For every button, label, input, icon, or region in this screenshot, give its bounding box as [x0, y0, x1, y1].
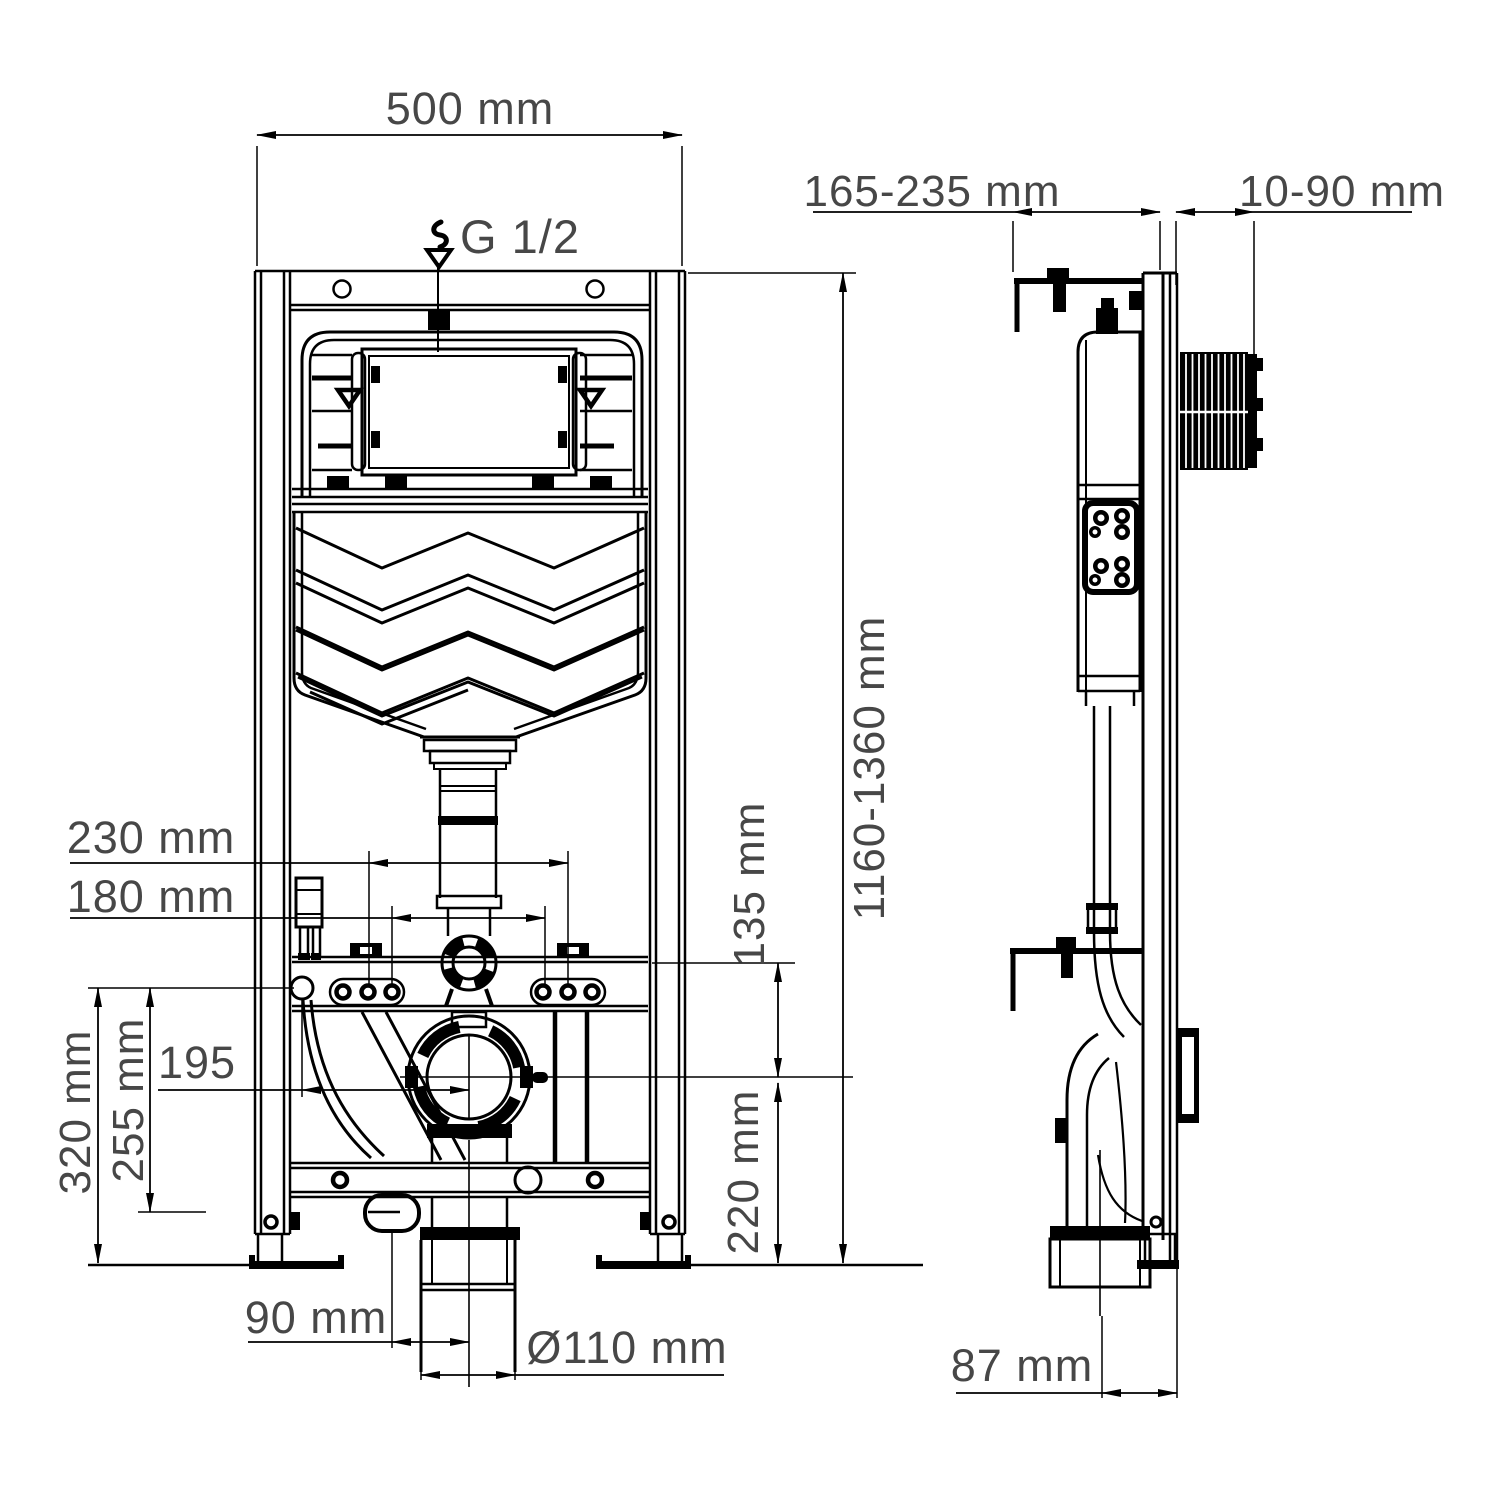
level-marker-left	[338, 390, 360, 406]
technical-drawing-canvas: 500 mm G 1/2 165-235 mm 10-90 mm 230 mm …	[0, 0, 1504, 1504]
drain-diameter-label: Ø110 mm	[526, 1322, 727, 1373]
inlet-height-mid-label: 255 mm	[104, 1018, 153, 1183]
flush-plate-rails	[292, 476, 648, 512]
level-marker-right	[580, 390, 602, 406]
frame-depth-label: 165-235 mm	[803, 167, 1060, 216]
waste-pipe	[420, 1140, 520, 1387]
inlet-thread-label: G 1/2	[460, 210, 580, 263]
side-drain	[1050, 1034, 1150, 1316]
flush-drop-label: 135 mm	[725, 802, 774, 967]
water-inlet-fitting	[428, 263, 450, 352]
drain-wall-offset-label: 87 mm	[951, 1340, 1094, 1391]
side-frame-rail	[1129, 273, 1179, 1269]
frame-height-label: 1160-1360 mm	[845, 616, 894, 921]
flush-plate-shaft	[1180, 352, 1263, 470]
drain-offset-label: 90 mm	[245, 1292, 388, 1343]
inlet-offset-label: 195	[158, 1037, 236, 1088]
fixing-span-outer-label: 230 mm	[67, 812, 236, 863]
cistern-tank	[294, 512, 646, 936]
bottom-crossbar	[290, 1163, 650, 1197]
cistern-frame-drawing: 500 mm G 1/2 165-235 mm 10-90 mm 230 mm …	[0, 0, 1504, 1504]
fixing-span-inner-label: 180 mm	[67, 871, 236, 922]
side-view	[1010, 268, 1263, 1316]
side-flush-pipe	[1086, 706, 1141, 1037]
cistern-wave-pattern	[296, 528, 644, 724]
drain-elbow	[400, 1009, 853, 1163]
upper-crossmember	[291, 936, 648, 1011]
wall-facing-label: 10-90 mm	[1239, 167, 1445, 216]
inlet-height-full-label: 320 mm	[51, 1030, 100, 1195]
inspection-box-frame	[302, 332, 642, 497]
water-inlet-symbol	[427, 222, 451, 267]
valve-holes	[1089, 508, 1130, 588]
drain-height-label: 220 mm	[719, 1090, 768, 1255]
wall-bracket-mount	[296, 878, 322, 960]
supply-opening	[365, 1195, 419, 1231]
side-cistern	[1078, 298, 1140, 706]
water-connection-hole	[291, 977, 313, 999]
frame-width-label: 500 mm	[386, 83, 555, 134]
